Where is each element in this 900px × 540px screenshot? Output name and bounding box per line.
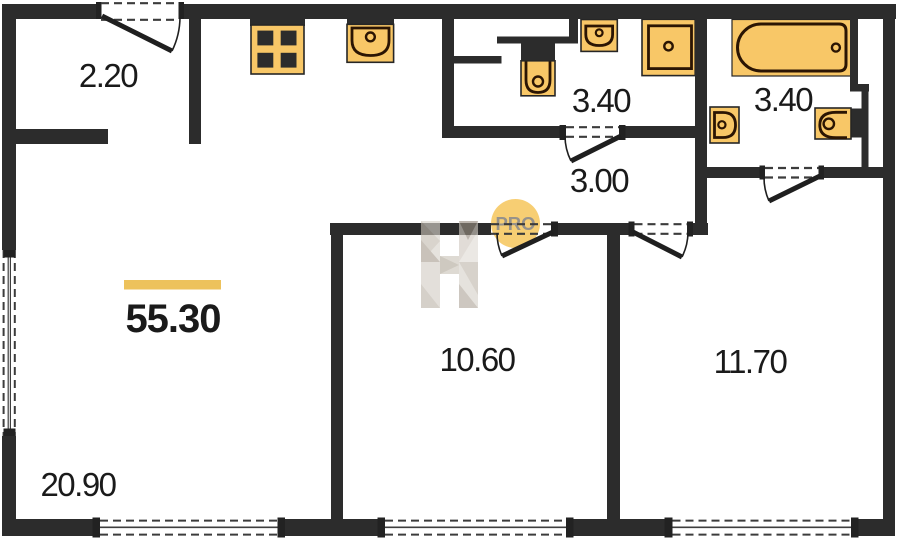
svg-text:11.70: 11.70 [714, 343, 788, 380]
svg-text:55.30: 55.30 [125, 297, 220, 341]
svg-text:3.00: 3.00 [570, 162, 629, 199]
svg-text:2.20: 2.20 [79, 57, 138, 94]
svg-text:3.40: 3.40 [572, 82, 631, 119]
svg-text:20.90: 20.90 [40, 466, 116, 503]
svg-text:10.60: 10.60 [439, 341, 515, 378]
svg-text:3.40: 3.40 [754, 81, 813, 118]
svg-text:PRO: PRO [495, 213, 535, 234]
